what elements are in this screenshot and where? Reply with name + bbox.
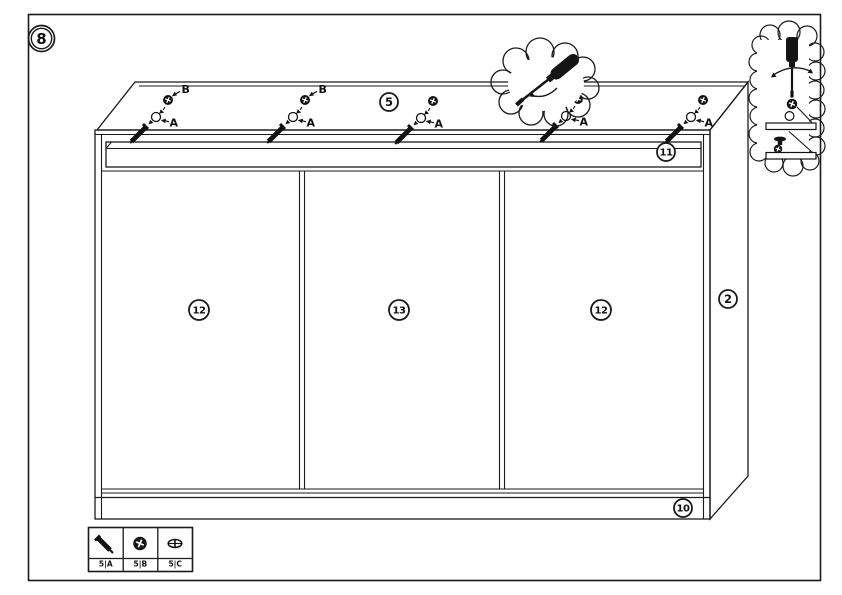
svg-text:12: 12 bbox=[193, 306, 206, 317]
screw-label-b: B bbox=[319, 83, 327, 96]
part-badge-top-panel: 5 bbox=[380, 93, 398, 111]
hole-label-a: A bbox=[705, 117, 714, 130]
svg-text:5: 5 bbox=[385, 95, 393, 109]
pilot-hole-icon bbox=[785, 112, 794, 121]
part-badge-right-door: 12 bbox=[591, 300, 611, 320]
cam-screw-icon bbox=[787, 99, 798, 110]
screw-head-icon bbox=[168, 540, 182, 548]
step-number: 8 bbox=[36, 30, 46, 48]
part-badge-side-panel: 2 bbox=[719, 290, 737, 308]
part-badge-left-door: 12 bbox=[189, 300, 209, 320]
instruction-page: 8 bbox=[0, 0, 842, 595]
legend-label-c: 5|C bbox=[168, 560, 182, 570]
svg-text:12: 12 bbox=[595, 306, 608, 317]
legend-label-a: 5|A bbox=[99, 560, 113, 570]
svg-text:10: 10 bbox=[677, 504, 690, 515]
hole-label-a: A bbox=[170, 117, 179, 130]
part-badge-top-rail: 11 bbox=[657, 143, 675, 161]
panel-section-bar bbox=[766, 123, 816, 130]
part-badge-middle-door: 13 bbox=[389, 300, 409, 320]
panel-section-bar bbox=[766, 153, 816, 160]
legend-label-b: 5|B bbox=[134, 560, 148, 570]
detail-bubble bbox=[749, 21, 825, 176]
cam-screw-icon bbox=[133, 537, 147, 551]
hole-label-a: A bbox=[580, 116, 589, 129]
svg-text:11: 11 bbox=[660, 148, 673, 159]
part-badge-bottom-rail: 10 bbox=[674, 499, 692, 517]
hole-label-a: A bbox=[307, 117, 316, 130]
svg-text:2: 2 bbox=[724, 292, 732, 306]
hole-label-a: A bbox=[435, 118, 444, 131]
screw-label-b: B bbox=[182, 83, 190, 96]
svg-text:13: 13 bbox=[393, 306, 406, 317]
